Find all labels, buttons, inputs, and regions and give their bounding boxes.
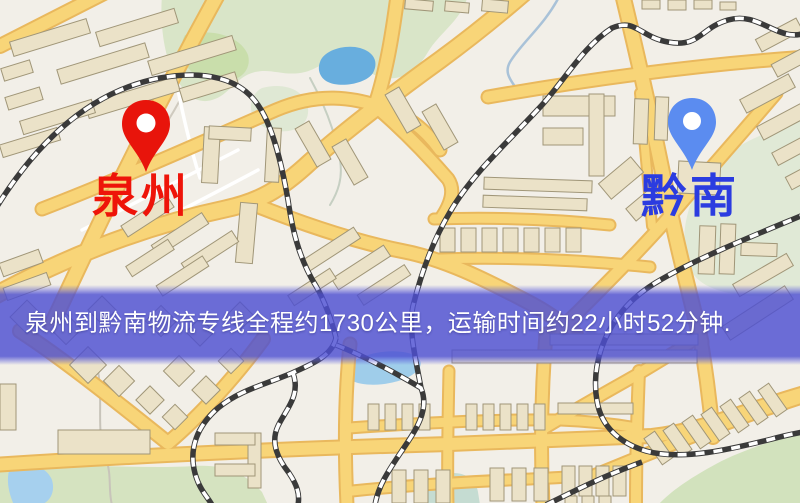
building xyxy=(500,404,511,430)
building xyxy=(503,228,518,252)
building xyxy=(483,404,494,430)
building xyxy=(524,228,539,252)
building xyxy=(466,404,477,430)
building xyxy=(668,0,686,10)
building xyxy=(368,404,379,430)
destination-marker-label: 黔南 xyxy=(641,174,739,220)
building xyxy=(720,2,736,10)
destination-marker-pin[interactable] xyxy=(664,96,720,172)
building xyxy=(482,228,497,252)
map-screenshot: 泉州到黔南物流专线全程约1730公里，运输时间约22小时52分钟. 泉州 黔南 xyxy=(0,0,800,503)
red-location-pin-icon xyxy=(122,100,170,172)
building xyxy=(599,496,611,503)
building xyxy=(741,242,777,256)
building xyxy=(490,468,504,501)
building xyxy=(215,433,255,445)
building xyxy=(385,404,396,430)
building xyxy=(215,464,255,476)
building xyxy=(534,468,548,501)
building xyxy=(566,228,581,252)
building xyxy=(534,404,545,430)
building xyxy=(405,0,434,11)
building xyxy=(642,0,660,9)
building xyxy=(633,99,649,144)
building xyxy=(0,384,16,430)
building xyxy=(589,94,604,176)
building xyxy=(392,470,406,503)
building xyxy=(694,0,712,9)
building xyxy=(445,1,470,13)
origin-marker-label: 泉州 xyxy=(92,174,190,220)
building xyxy=(58,430,150,454)
building xyxy=(414,470,428,503)
pin-center-dot xyxy=(137,114,156,133)
building xyxy=(209,126,252,141)
route-info-text: 泉州到黔南物流专线全程约1730公里，运输时间约22小时52分钟. xyxy=(25,303,731,338)
origin-marker-pin[interactable] xyxy=(118,98,174,174)
building xyxy=(482,0,509,13)
building xyxy=(402,404,413,430)
building xyxy=(698,226,716,275)
building xyxy=(436,470,450,503)
building xyxy=(512,468,526,501)
building xyxy=(517,404,528,430)
route-info-banner: 泉州到黔南物流专线全程约1730公里，运输时间约22小时52分钟. xyxy=(0,285,800,365)
building xyxy=(582,496,594,503)
building xyxy=(545,228,560,252)
building xyxy=(543,128,583,145)
map-canvas[interactable] xyxy=(0,0,800,503)
building xyxy=(461,228,476,252)
blue-location-pin-icon xyxy=(668,98,716,170)
pin-center-dot xyxy=(683,112,701,130)
